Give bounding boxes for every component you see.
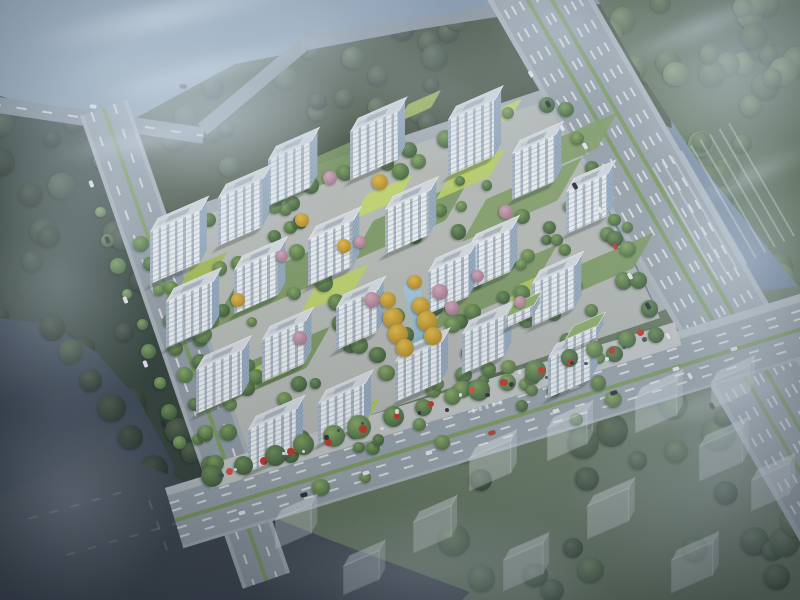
tree — [444, 388, 461, 405]
tree — [199, 425, 213, 439]
tree — [514, 296, 526, 308]
tree — [293, 331, 307, 345]
pedestrian-dot — [584, 362, 587, 365]
tree — [396, 339, 414, 357]
tree — [445, 301, 459, 315]
pedestrian-dot — [395, 409, 399, 413]
retail-awning-dot — [325, 439, 332, 446]
tree — [231, 293, 245, 307]
pedestrian-dot — [605, 357, 609, 361]
tree — [265, 445, 286, 466]
tree — [424, 327, 442, 345]
tree — [499, 205, 513, 219]
retail-awning-dot — [500, 379, 508, 387]
tree — [501, 360, 516, 375]
tree — [482, 180, 493, 191]
tree — [372, 174, 388, 190]
tree — [380, 292, 396, 308]
tree — [364, 292, 380, 308]
pedestrian-dot — [282, 452, 285, 455]
tree — [289, 244, 305, 260]
tree — [543, 221, 556, 234]
tree — [541, 235, 551, 245]
tree — [472, 270, 484, 282]
tree — [276, 250, 288, 262]
tree — [451, 224, 466, 239]
tree — [526, 385, 538, 397]
aerial-residential-rendering — [0, 0, 800, 600]
tree — [618, 331, 635, 348]
pedestrian-dot — [418, 411, 421, 414]
tree — [373, 434, 384, 445]
tree — [177, 367, 193, 383]
tree — [559, 244, 571, 256]
pedestrian-dot — [642, 337, 647, 342]
pedestrian-dot — [324, 435, 328, 439]
tree — [353, 442, 365, 454]
pedestrian-dot — [518, 370, 522, 374]
tree — [432, 284, 448, 300]
tree — [608, 214, 620, 226]
tree — [413, 418, 426, 431]
tree — [369, 347, 385, 363]
tree — [408, 275, 422, 289]
tree — [354, 236, 366, 248]
pedestrian-dot — [485, 393, 490, 398]
tree — [310, 378, 321, 389]
tree — [516, 259, 527, 270]
pedestrian-dot — [302, 450, 305, 453]
fog-patch — [330, 30, 590, 170]
retail-awning-dot — [359, 425, 367, 433]
tree — [291, 376, 307, 392]
pedestrian-dot — [459, 393, 462, 396]
tree — [378, 365, 394, 381]
tree — [234, 456, 253, 475]
retail-awning-dot — [538, 367, 545, 374]
pedestrian-dot — [445, 408, 449, 412]
tree — [154, 377, 166, 389]
tree — [337, 239, 351, 253]
tree — [288, 287, 301, 300]
tree — [456, 201, 467, 212]
pedestrian-dot — [509, 382, 514, 387]
tree — [312, 479, 330, 497]
tree — [591, 375, 607, 391]
